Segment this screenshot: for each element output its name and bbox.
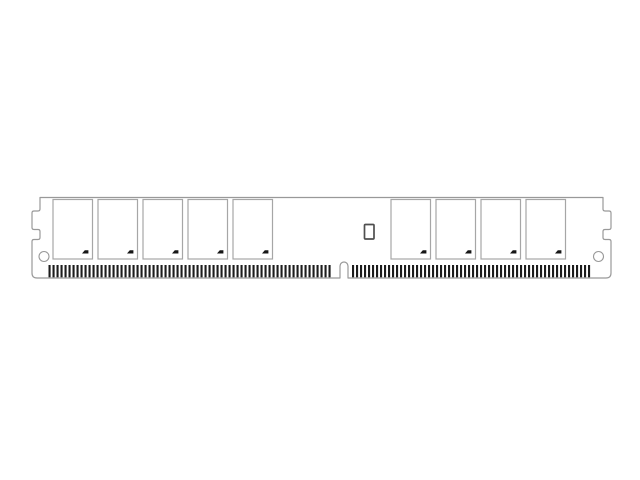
connector-pin (269, 265, 271, 277)
connector-pin (508, 265, 510, 277)
connector-pin (181, 265, 183, 277)
connector-pin (69, 265, 71, 277)
connector-pin (580, 265, 582, 277)
connector-pin (165, 265, 167, 277)
connector-pin (380, 265, 382, 277)
connector-pin (173, 265, 175, 277)
connector-pin (484, 265, 486, 277)
connector-pin (109, 265, 111, 277)
connector-pin (193, 265, 195, 277)
connector-pin (456, 265, 458, 277)
connector-pin (61, 265, 63, 277)
connector-pin (432, 265, 434, 277)
connector-pin (556, 265, 558, 277)
connector-pin (225, 265, 227, 277)
connector-pin (548, 265, 550, 277)
memory-chip (143, 200, 183, 260)
connector-pin (221, 265, 223, 277)
connector-pin (552, 265, 554, 277)
connector-pin (241, 265, 243, 277)
connector-pin (520, 265, 522, 277)
spd-chip (365, 225, 375, 240)
connector-pin (572, 265, 574, 277)
connector-pin (253, 265, 255, 277)
connector-pin (113, 265, 115, 277)
connector-pin (197, 265, 199, 277)
right-mounting-hole (594, 252, 604, 262)
connector-pin (245, 265, 247, 277)
connector-pin (384, 265, 386, 277)
connector-pin (249, 265, 251, 277)
connector-pin (588, 265, 590, 277)
memory-chip (526, 200, 566, 260)
connector-pin (532, 265, 534, 277)
connector-pin (400, 265, 402, 277)
connector-pin (468, 265, 470, 277)
connector-pin (101, 265, 103, 277)
connector-pin (372, 265, 374, 277)
connector-pin (317, 265, 319, 277)
connector-pin (297, 265, 299, 277)
connector-pin (157, 265, 159, 277)
connector-pin (528, 265, 530, 277)
connector-pin (424, 265, 426, 277)
connector-pin (376, 265, 378, 277)
connector-pin (65, 265, 67, 277)
connector-pin (233, 265, 235, 277)
connector-pin (289, 265, 291, 277)
connector-pin (368, 265, 370, 277)
connector-pin (448, 265, 450, 277)
connector-pin (209, 265, 211, 277)
connector-pin (145, 265, 147, 277)
connector-pin (57, 265, 59, 277)
memory-chip (98, 200, 138, 260)
connector-pin (117, 265, 119, 277)
connector-pin (129, 265, 131, 277)
connector-pin (356, 265, 358, 277)
connector-pin (420, 265, 422, 277)
memory-chip (481, 200, 521, 260)
connector-pin (53, 265, 55, 277)
connector-pin (217, 265, 219, 277)
connector-pin (137, 265, 139, 277)
connector-pin (81, 265, 83, 277)
connector-pin (201, 265, 203, 277)
memory-chip (188, 200, 228, 260)
connector-pin (504, 265, 506, 277)
connector-pin (560, 265, 562, 277)
connector-pin (472, 265, 474, 277)
connector-pin (436, 265, 438, 277)
connector-pin (352, 265, 354, 277)
connector-pin (277, 265, 279, 277)
connector-pin (576, 265, 578, 277)
connector-pin (97, 265, 99, 277)
connector-pin (213, 265, 215, 277)
connector-pin (428, 265, 430, 277)
connector-pin (325, 265, 327, 277)
connector-pin (89, 265, 91, 277)
connector-pin (440, 265, 442, 277)
connector-pin (161, 265, 163, 277)
connector-pin (205, 265, 207, 277)
connector-pin (153, 265, 155, 277)
connector-pin (412, 265, 414, 277)
connector-pin (149, 265, 151, 277)
connector-pin (536, 265, 538, 277)
connector-pin (285, 265, 287, 277)
connector-pin (404, 265, 406, 277)
connector-pin (185, 265, 187, 277)
connector-pin (301, 265, 303, 277)
connector-pin (281, 265, 283, 277)
connector-pin (169, 265, 171, 277)
connector-pin (544, 265, 546, 277)
connector-pin (516, 265, 518, 277)
connector-pin (313, 265, 315, 277)
connector-pin (568, 265, 570, 277)
connector-pin (388, 265, 390, 277)
connector-pin (392, 265, 394, 277)
connector-pin (460, 265, 462, 277)
connector-pin (141, 265, 143, 277)
memory-module-illustration (0, 0, 640, 480)
connector-pin (480, 265, 482, 277)
connector-pin (257, 265, 259, 277)
connector-pin (177, 265, 179, 277)
memory-chip (233, 200, 273, 260)
connector-pin (265, 265, 267, 277)
connector-pin (133, 265, 135, 277)
connector-pin (444, 265, 446, 277)
connector-pin (408, 265, 410, 277)
connector-pin (73, 265, 75, 277)
connector-pin (524, 265, 526, 277)
connector-pin (496, 265, 498, 277)
memory-chip (53, 200, 93, 260)
connector-pin (416, 265, 418, 277)
memory-chip (436, 200, 476, 260)
connector-pin (452, 265, 454, 277)
connector-pin (105, 265, 107, 277)
connector-pin (540, 265, 542, 277)
connector-pin (584, 265, 586, 277)
left-mounting-hole (39, 252, 49, 262)
connector-pin (237, 265, 239, 277)
connector-pin (500, 265, 502, 277)
memory-chip (391, 200, 431, 260)
connector-pin (360, 265, 362, 277)
connector-pin (464, 265, 466, 277)
connector-pin (492, 265, 494, 277)
connector-pin (564, 265, 566, 277)
connector-pin (121, 265, 123, 277)
product-image (0, 0, 640, 480)
connector-pin (305, 265, 307, 277)
connector-pin (93, 265, 95, 277)
connector-pin (329, 265, 331, 277)
connector-pin (293, 265, 295, 277)
connector-pin (364, 265, 366, 277)
connector-pin (49, 265, 51, 277)
connector-pin (512, 265, 514, 277)
connector-pin (476, 265, 478, 277)
connector-pin (229, 265, 231, 277)
connector-pin (309, 265, 311, 277)
connector-pin (273, 265, 275, 277)
connector-pin (488, 265, 490, 277)
connector-pin (261, 265, 263, 277)
connector-pin (189, 265, 191, 277)
connector-pin (321, 265, 323, 277)
connector-pin (85, 265, 87, 277)
connector-pin (396, 265, 398, 277)
connector-pin (77, 265, 79, 277)
connector-pin (125, 265, 127, 277)
